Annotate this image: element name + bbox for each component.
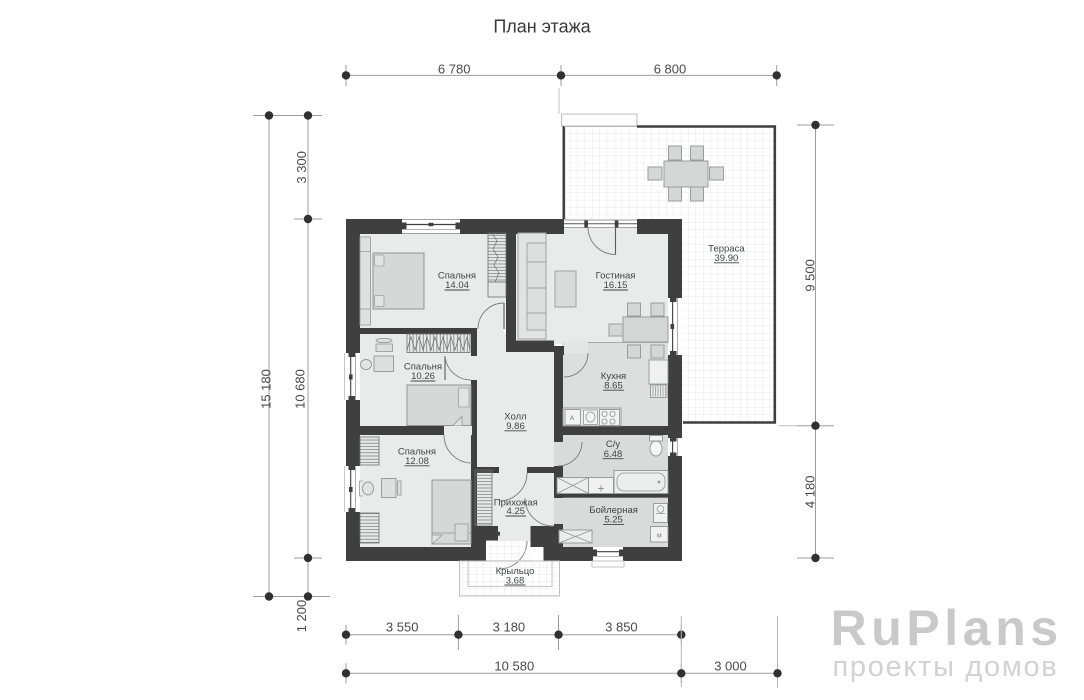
svg-text:10.26: 10.26 (411, 371, 435, 382)
svg-text:A: A (570, 416, 574, 422)
svg-text:M: M (657, 534, 662, 540)
svg-text:3 550: 3 550 (386, 620, 419, 635)
svg-text:3 000: 3 000 (714, 658, 747, 673)
svg-text:6.48: 6.48 (604, 449, 623, 460)
svg-text:8.65: 8.65 (604, 380, 623, 391)
svg-text:14.04: 14.04 (445, 280, 469, 291)
svg-text:3 180: 3 180 (493, 620, 526, 635)
svg-text:6 800: 6 800 (654, 61, 687, 76)
svg-text:5.25: 5.25 (604, 515, 623, 526)
svg-text:16.15: 16.15 (604, 280, 628, 291)
svg-text:3 300: 3 300 (294, 151, 309, 184)
svg-text:6 780: 6 780 (438, 61, 471, 76)
svg-text:1 200: 1 200 (294, 600, 309, 633)
svg-text:4 180: 4 180 (803, 476, 818, 509)
svg-text:10 580: 10 580 (494, 658, 534, 673)
svg-text:9 500: 9 500 (803, 259, 818, 292)
svg-text:План этажа: План этажа (493, 17, 591, 37)
svg-text:10 680: 10 680 (293, 369, 308, 409)
svg-text:3 850: 3 850 (605, 620, 638, 635)
svg-text:15 180: 15 180 (259, 369, 274, 409)
